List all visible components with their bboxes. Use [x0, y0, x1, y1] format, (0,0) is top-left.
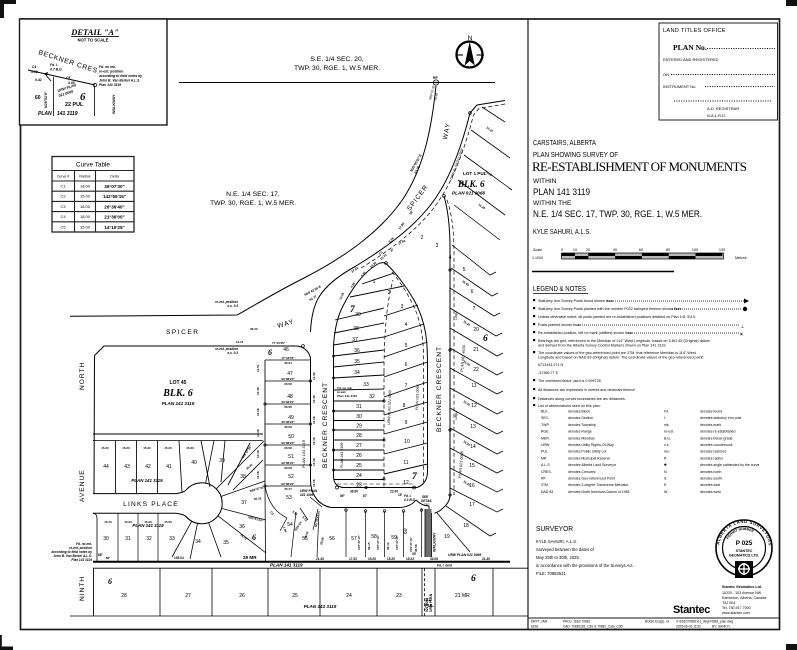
svg-text:33.08: 33.08 — [430, 557, 438, 561]
svg-text:5: 5 — [405, 343, 408, 349]
svg-text:54: 54 — [287, 522, 293, 528]
svg-text:29: 29 — [356, 424, 362, 430]
svg-text:-47366.77 E: -47366.77 E — [538, 371, 559, 375]
svg-text:26: 26 — [356, 453, 362, 459]
svg-text:14.38: 14.38 — [312, 395, 316, 403]
svg-text:PLAN 141 3119: PLAN 141 3119 — [304, 604, 337, 609]
svg-text:PLAN 241 1509: PLAN 241 1509 — [340, 443, 344, 468]
svg-text:21: 21 — [473, 347, 479, 353]
svg-text:105°37'10": 105°37'10" — [409, 536, 413, 552]
svg-text:denotes countersunk: denotes countersunk — [700, 443, 733, 447]
svg-text:8: 8 — [403, 403, 406, 409]
svg-text:BOOK Evq(s). xx: BOOK Evq(s). xx — [645, 620, 670, 624]
svg-text:14.38: 14.38 — [256, 471, 260, 479]
svg-text:4: 4 — [405, 322, 408, 328]
svg-text:30: 30 — [103, 536, 109, 542]
svg-text:23: 23 — [396, 593, 402, 599]
svg-text:URW: URW — [454, 411, 459, 420]
svg-text:A.L.S.: A.L.S. — [541, 463, 551, 467]
svg-text:35.77: 35.77 — [284, 487, 292, 491]
svg-text:29 MR: 29 MR — [243, 555, 257, 560]
svg-text:denotes Block: denotes Block — [568, 410, 590, 414]
svg-text:15.22: 15.22 — [406, 557, 414, 561]
svg-text:The coordinate values of the g: The coordinate values of the geo-referen… — [538, 351, 696, 355]
svg-text:C3: C3 — [60, 204, 66, 209]
svg-text:denotes Alberta Land Surveyor: denotes Alberta Land Surveyor — [568, 463, 617, 467]
svg-text:The combined factor used is 0.: The combined factor used is 0.999728. — [538, 379, 602, 383]
svg-text:56: 56 — [329, 536, 335, 542]
svg-text:according to field notes by: according to field notes by — [99, 74, 143, 78]
svg-text:res.: res. — [664, 450, 670, 454]
svg-text:denotes statutory iron post: denotes statutory iron post — [700, 416, 741, 420]
svg-text:Stantec: Stantec — [673, 604, 710, 616]
svg-text:CARSTAIRS, ALBERTA: CARSTAIRS, ALBERTA — [533, 138, 596, 147]
svg-text:WALKWAY: WALKWAY — [112, 94, 116, 114]
svg-text:SPICER: SPICER — [166, 329, 200, 336]
svg-text:20: 20 — [586, 248, 590, 252]
svg-text:6: 6 — [405, 362, 408, 368]
svg-text:33: 33 — [169, 536, 175, 542]
svg-text:MER.: MER. — [541, 436, 550, 440]
svg-text:1:1000: 1:1000 — [532, 256, 543, 260]
svg-text:All distances are expressed in: All distances are expressed in metres an… — [538, 388, 636, 392]
svg-text:John B. Van Berkel A.L.S.: John B. Van Berkel A.L.S. — [99, 79, 140, 83]
svg-text:120: 120 — [719, 248, 725, 252]
svg-text:12: 12 — [403, 480, 409, 486]
svg-text:BLK.: BLK. — [541, 410, 549, 414]
svg-text:21.40: 21.40 — [482, 557, 490, 561]
svg-text:denotes south: denotes south — [700, 477, 722, 481]
svg-text:DETAIL "A": DETAIL "A" — [70, 27, 119, 37]
svg-text:7: 7 — [405, 383, 408, 389]
svg-text:I.: I. — [664, 416, 666, 420]
svg-text:INSTRUMENT No.: INSTRUMENT No. — [663, 84, 696, 89]
svg-text:36.50: 36.50 — [350, 490, 358, 494]
svg-text:60: 60 — [639, 248, 643, 252]
svg-text:16: 16 — [469, 483, 475, 489]
svg-text:E.: E. — [664, 483, 667, 487]
svg-text:BECKNER CRESCENT: BECKNER CRESCENT — [436, 346, 443, 432]
svg-text:List of abbreviations used on: List of abbreviations used on this plan: — [538, 404, 601, 408]
svg-text:C5: C5 — [60, 224, 66, 229]
svg-text:May 29th to 30th, 2025: May 29th to 30th, 2025 — [536, 555, 580, 560]
svg-text:36: 36 — [354, 348, 360, 354]
svg-text:50: 50 — [288, 434, 294, 440]
svg-text:26°36'40": 26°36'40" — [104, 204, 124, 209]
svg-text:90°08'20": 90°08'20" — [281, 420, 295, 424]
svg-text:36.34: 36.34 — [284, 361, 292, 365]
svg-text:NOT TO SCALE: NOT TO SCALE — [77, 38, 108, 43]
svg-text:LINKS PLACE: LINKS PLACE — [123, 501, 179, 508]
svg-text:GEOMATICS LTD.: GEOMATICS LTD. — [729, 554, 759, 558]
svg-text:N.A.L.R.D.: N.A.L.R.D. — [707, 113, 726, 118]
svg-text:25: 25 — [356, 463, 362, 469]
svg-text:15.20: 15.20 — [368, 557, 376, 561]
svg-text:DRFT. JAM: DRFT. JAM — [531, 620, 548, 624]
svg-text:SEC.: SEC. — [541, 416, 549, 420]
svg-text:o.s. 0.3: o.s. 0.3 — [227, 304, 238, 308]
svg-text:67': 67' — [363, 494, 368, 498]
svg-text:15.20: 15.20 — [104, 520, 112, 524]
svg-text:12: 12 — [471, 403, 477, 409]
svg-text:36.58: 36.58 — [414, 544, 418, 552]
svg-text:9: 9 — [405, 420, 408, 426]
svg-text:21.40: 21.40 — [316, 557, 324, 561]
svg-text:Radius: Radius — [79, 175, 90, 179]
svg-text:MR: MR — [541, 456, 547, 460]
svg-text:T5J 0K4: T5J 0K4 — [722, 601, 735, 605]
svg-text:CAD. 70881181_C3S & 70881_Cata: CAD. 70881181_C3S & 70881_Cata_C3D — [563, 625, 624, 629]
svg-text:denotes restored: denotes restored — [700, 450, 726, 454]
svg-text:SURVEYOR: SURVEYOR — [536, 524, 573, 533]
svg-text:14.38: 14.38 — [312, 458, 316, 466]
svg-text:PLAN 141 3119: PLAN 141 3119 — [162, 401, 195, 406]
svg-text:43: 43 — [124, 464, 130, 470]
svg-text:105°37'10": 105°37'10" — [376, 534, 380, 550]
svg-text:LOT 1 PUL: LOT 1 PUL — [463, 171, 487, 176]
svg-text:37: 37 — [352, 337, 358, 343]
svg-text:36.58: 36.58 — [284, 446, 292, 450]
svg-text:Scale: Scale — [533, 248, 542, 252]
svg-text:2: 2 — [388, 290, 391, 296]
svg-text:36°07'30": 36°07'30" — [104, 184, 124, 189]
svg-text:32: 32 — [146, 536, 152, 542]
svg-text:"A": "A" — [424, 503, 430, 507]
svg-text:NORTH: NORTH — [79, 362, 86, 390]
svg-text:denotes west: denotes west — [700, 490, 721, 494]
svg-text:53: 53 — [286, 495, 292, 501]
svg-text:34: 34 — [354, 370, 360, 376]
svg-text:11: 11 — [403, 460, 408, 466]
svg-text:19: 19 — [444, 534, 450, 540]
svg-text:15.20: 15.20 — [143, 446, 151, 450]
svg-text:37: 37 — [241, 500, 247, 506]
svg-text:denotes mark: denotes mark — [700, 423, 721, 427]
svg-text:PLAN SHOWING SURVEY OF: PLAN SHOWING SURVEY OF — [533, 150, 619, 159]
svg-text:60: 60 — [35, 95, 41, 101]
svg-text:P 025: P 025 — [736, 540, 753, 547]
svg-text:KYLE SAHURI, A.L.S.: KYLE SAHURI, A.L.S. — [536, 539, 577, 544]
svg-text:14.38: 14.38 — [256, 429, 260, 437]
svg-text:10: 10 — [404, 439, 410, 445]
svg-text:15.30: 15.30 — [186, 446, 194, 450]
svg-text:TWP. 30, RGE. 1, W.5 MER.: TWP. 30, RGE. 1, W.5 MER. — [294, 65, 380, 72]
svg-text:denotes re-established: denotes re-established — [700, 430, 735, 434]
svg-text:c.s.: c.s. — [664, 443, 669, 447]
svg-text:Re-established position, left: Re-established position, left no mark (u… — [538, 331, 632, 335]
svg-text:A.D. REGISTRAR: A.D. REGISTRAR — [707, 106, 739, 111]
svg-text:36.15: 36.15 — [367, 542, 371, 550]
svg-text:4: 4 — [449, 255, 452, 261]
svg-text:Statutory Iron Survey Posts pl: Statutory Iron Survey Posts planted with… — [538, 307, 681, 311]
svg-text:22 PUL: 22 PUL — [65, 102, 84, 108]
svg-text:EEM.: EEM. — [531, 625, 539, 629]
svg-text:31: 31 — [356, 404, 362, 410]
svg-text:Fd. I.: Fd. I. — [50, 63, 58, 67]
svg-text:re-est. position: re-est. position — [99, 70, 123, 74]
svg-text:18.00: 18.00 — [80, 204, 91, 209]
svg-text:39: 39 — [219, 458, 225, 464]
svg-text:WALKWAY: WALKWAY — [433, 532, 437, 552]
svg-text:C4: C4 — [60, 214, 66, 219]
svg-text:Fd. no mk.: Fd. no mk. — [99, 65, 116, 69]
svg-text:Tel. 780.917.7000: Tel. 780.917.7000 — [722, 606, 751, 610]
svg-text:Fd.: Fd. — [664, 410, 669, 414]
svg-text:Delta: Delta — [110, 175, 118, 179]
svg-text:PLAN 141 3119: PLAN 141 3119 — [270, 563, 303, 568]
svg-text:NAD 83: NAD 83 — [541, 490, 553, 494]
svg-text:denotes below grade: denotes below grade — [700, 436, 733, 440]
svg-text:B.G.: B.G. — [664, 436, 671, 440]
svg-text:21°36'00": 21°36'00" — [104, 215, 124, 220]
svg-text:2025-06-02 11:52: 2025-06-02 11:52 — [676, 625, 701, 629]
svg-text:35: 35 — [354, 359, 360, 365]
svg-text:www.stantec.com: www.stantec.com — [722, 611, 750, 615]
svg-text:90°08'20": 90°08'20" — [281, 482, 295, 486]
svg-text:15.20: 15.20 — [164, 446, 172, 450]
svg-text:denotes Geo-referenced Point: denotes Geo-referenced Point — [568, 477, 615, 481]
svg-text:36.58: 36.58 — [284, 382, 292, 386]
svg-text:denotes east: denotes east — [700, 483, 720, 487]
svg-text:10220 - 103 Avenue NW: 10220 - 103 Avenue NW — [722, 591, 762, 595]
svg-text:39: 39 — [355, 312, 361, 318]
svg-text:15': 15' — [398, 493, 403, 497]
svg-text:141 3119: 141 3119 — [57, 111, 78, 117]
svg-text:14.38: 14.38 — [312, 416, 316, 424]
svg-text:80: 80 — [666, 248, 670, 252]
svg-text:Surveyed between the dates of: Surveyed between the dates of — [536, 547, 595, 552]
svg-text:6: 6 — [252, 533, 256, 542]
svg-text:100: 100 — [692, 248, 698, 252]
svg-text:denotes Township: denotes Township — [568, 423, 596, 427]
svg-text:15.00: 15.00 — [80, 194, 91, 199]
svg-text:PLAN No.: PLAN No. — [673, 43, 707, 52]
svg-text:CRES.: CRES. — [541, 470, 552, 474]
svg-text:6: 6 — [471, 574, 476, 584]
svg-text:AVENUE: AVENUE — [79, 469, 86, 502]
svg-text:51: 51 — [288, 454, 294, 460]
svg-text:10: 10 — [573, 248, 577, 252]
svg-text:PLAN 141 3119: PLAN 141 3119 — [533, 187, 590, 198]
svg-text:Posts planted shown thus: Posts planted shown thus — [538, 323, 580, 327]
svg-text:BLK. 6: BLK. 6 — [457, 179, 485, 189]
svg-text:18: 18 — [463, 523, 469, 529]
svg-text:15.20: 15.20 — [101, 446, 109, 450]
svg-text:Stantec Geomatics Ltd.: Stantec Geomatics Ltd. — [722, 585, 762, 589]
svg-text:♠: ♠ — [664, 462, 667, 468]
svg-text:denotes 3-degree Transverse Me: denotes 3-degree Transverse Mercator — [568, 483, 629, 487]
svg-text:13: 13 — [470, 424, 476, 430]
svg-text:77°42'05": 77°42'05" — [272, 341, 286, 345]
svg-text:7: 7 — [473, 306, 476, 312]
svg-text:24: 24 — [346, 593, 352, 599]
svg-text:90°08'20": 90°08'20" — [281, 377, 295, 381]
svg-text:N.E. 1/4 SEC. 17,: N.E. 1/4 SEC. 17, — [226, 191, 280, 198]
svg-text:denotes Section: denotes Section — [568, 416, 593, 420]
svg-text:LOT 45: LOT 45 — [170, 380, 187, 386]
svg-text:Longitude and based on NAD 83: Longitude and based on NAD 83 (Original)… — [538, 356, 704, 360]
svg-text:22: 22 — [426, 597, 431, 602]
svg-text:denotes Public Utility Lot: denotes Public Utility Lot — [568, 450, 606, 454]
svg-text:denotes Crescent: denotes Crescent — [568, 470, 595, 474]
svg-text:Curve #: Curve # — [57, 175, 70, 179]
svg-text:46: 46 — [283, 347, 289, 353]
svg-text:URW: URW — [454, 311, 459, 320]
svg-text:27: 27 — [185, 593, 191, 599]
svg-text:ENTERED AND REGISTERED: ENTERED AND REGISTERED — [663, 57, 719, 62]
svg-text:C5: C5 — [66, 76, 70, 80]
svg-text:60: 60 — [403, 528, 409, 534]
svg-text:5: 5 — [463, 267, 466, 273]
svg-text:TWP.: TWP. — [541, 423, 549, 427]
svg-text:22.40: 22.40 — [390, 490, 398, 494]
svg-text:denotes angle subtended by the: denotes angle subtended by the curve — [700, 463, 759, 467]
svg-text:36.58: 36.58 — [284, 466, 292, 470]
svg-text:40: 40 — [191, 460, 197, 466]
svg-text:52: 52 — [288, 474, 294, 480]
svg-text:14.38: 14.38 — [312, 479, 316, 487]
svg-text:Fd. I. bent: Fd. I. bent — [437, 564, 453, 568]
svg-text:RP: RP — [541, 477, 547, 481]
svg-text:Unless otherwise noted, all po: Unless otherwise noted, all posts plante… — [538, 315, 696, 319]
svg-text:PROJ. 1662-70881: PROJ. 1662-70881 — [563, 620, 591, 624]
svg-text:denotes Meridian: denotes Meridian — [568, 436, 595, 440]
svg-text:re-est.: re-est. — [664, 430, 674, 434]
svg-text:PLAN: PLAN — [38, 111, 52, 117]
svg-text:×: × — [740, 332, 743, 338]
svg-text:36.30: 36.30 — [250, 327, 258, 331]
svg-text:27: 27 — [356, 443, 362, 449]
svg-text:36: 36 — [239, 524, 245, 530]
svg-text:WITHIN: WITHIN — [533, 178, 557, 185]
svg-text:3TM: 3TM — [541, 483, 548, 487]
svg-text:Edmonton, Alberta, Canada: Edmonton, Alberta, Canada — [722, 596, 766, 600]
svg-text:and derived from the Alberta S: and derived from the Alberta Survey Cont… — [538, 344, 666, 348]
svg-text:6: 6 — [268, 348, 272, 357]
svg-text:36.58: 36.58 — [284, 405, 292, 409]
svg-text:89°: 89° — [340, 494, 346, 498]
svg-text:0.3 B.G.: 0.3 B.G. — [404, 498, 416, 502]
svg-text:Distances along curved boundar: Distances along curved boundaries are ar… — [538, 397, 626, 401]
svg-text:105°37'10": 105°37'10" — [357, 534, 361, 550]
svg-text:3: 3 — [436, 243, 439, 249]
svg-text:33: 33 — [363, 382, 369, 388]
svg-text:o.s. 0.3: o.s. 0.3 — [227, 351, 238, 355]
svg-text:denotes radius: denotes radius — [700, 456, 723, 460]
svg-text:PLAN 141 3119: PLAN 141 3119 — [301, 439, 306, 468]
svg-text:90°08'20": 90°08'20" — [281, 441, 295, 445]
svg-text:Plan 141 3119: Plan 141 3119 — [337, 394, 357, 398]
svg-text:35.43: 35.43 — [254, 496, 262, 501]
svg-text:denotes North American Datum o: denotes North American Datum of 1983 — [568, 490, 630, 494]
svg-text:31: 31 — [125, 536, 131, 542]
svg-text:N29°51'8": N29°51'8" — [44, 91, 48, 108]
svg-text:68°: 68° — [98, 553, 104, 557]
svg-text:URW PLAN 021 0069: URW PLAN 021 0069 — [448, 553, 481, 557]
svg-text:44: 44 — [103, 464, 109, 470]
svg-text:in accordance with the provisi: in accordance with the provisions of the… — [536, 563, 634, 568]
svg-text:35': 35' — [412, 552, 417, 556]
svg-text:6: 6 — [471, 289, 474, 295]
svg-text:N.: N. — [664, 470, 668, 474]
svg-text:6: 6 — [108, 577, 112, 586]
svg-text:14.51: 14.51 — [256, 364, 260, 372]
svg-text:denotes found: denotes found — [700, 410, 722, 414]
svg-text:RE-ESTABLISHMENT OF MONUMENTS: RE-ESTABLISHMENT OF MONUMENTS — [532, 159, 747, 174]
svg-text:denotes Municipal Reserve: denotes Municipal Reserve — [568, 456, 610, 460]
svg-text:15.20: 15.20 — [124, 520, 132, 524]
svg-text:W.: W. — [664, 490, 668, 494]
svg-text:14.51: 14.51 — [236, 340, 244, 344]
svg-text:WITHIN THE: WITHIN THE — [533, 200, 572, 207]
svg-text:18.00: 18.00 — [80, 184, 91, 189]
svg-text:BLK. 6: BLK. 6 — [162, 388, 192, 399]
svg-text:RP: RP — [433, 76, 438, 80]
svg-text:BY: SAHKYL: BY: SAHKYL — [712, 625, 731, 629]
svg-text:14: 14 — [470, 444, 476, 450]
svg-text:105°37'10": 105°37'10" — [395, 534, 399, 550]
svg-text:14.38: 14.38 — [256, 408, 260, 416]
svg-text:TWP. 30, RGE. 1, W.5 MER.: TWP. 30, RGE. 1, W.5 MER. — [210, 200, 296, 207]
svg-text:RGE.: RGE. — [541, 430, 550, 434]
svg-text:Bearings are grid, referenced: Bearings are grid, referenced to the Mer… — [538, 339, 710, 343]
svg-text:15.00: 15.00 — [80, 224, 91, 229]
svg-text:S.: S. — [664, 477, 667, 481]
svg-text:36.12: 36.12 — [386, 542, 390, 550]
svg-text:11: 11 — [471, 383, 476, 389]
svg-text:15.20: 15.20 — [122, 446, 130, 450]
svg-text:28: 28 — [356, 433, 362, 439]
svg-text:C4: C4 — [32, 65, 36, 69]
svg-text:14.38: 14.38 — [312, 372, 316, 380]
svg-text:36.58: 36.58 — [284, 425, 292, 429]
svg-text:denotes Utility Rights-Of-Way: denotes Utility Rights-Of-Way — [568, 443, 614, 447]
svg-text:PUL: PUL — [541, 450, 548, 454]
svg-text:23: 23 — [356, 483, 362, 489]
svg-text:42: 42 — [145, 464, 151, 470]
svg-text:S.E. 1/4 SEC. 20,: S.E. 1/4 SEC. 20, — [310, 56, 363, 63]
svg-text:34: 34 — [195, 539, 201, 545]
svg-text:KYLE SAHURI, A.L.S.: KYLE SAHURI, A.L.S. — [533, 227, 591, 236]
svg-text:C2: C2 — [60, 194, 66, 199]
svg-text:15.20: 15.20 — [144, 520, 152, 524]
svg-text:1: 1 — [373, 279, 376, 285]
svg-text:241 1509: 241 1509 — [299, 493, 314, 497]
svg-text:0: 0 — [561, 248, 563, 252]
svg-text:90°08'20": 90°08'20" — [281, 461, 295, 465]
svg-text:C1: C1 — [60, 184, 66, 189]
svg-text:Metres: Metres — [735, 256, 747, 260]
svg-text:FILE: 70883531: FILE: 70883531 — [536, 571, 566, 576]
svg-text:68°: 68° — [106, 556, 111, 560]
svg-text:15.26: 15.26 — [164, 520, 172, 524]
svg-text:40: 40 — [613, 248, 617, 252]
svg-text:26: 26 — [239, 593, 245, 599]
svg-text:17.20: 17.20 — [349, 557, 357, 561]
svg-text:14.38: 14.38 — [256, 387, 260, 395]
svg-text:N.E. 1/4 SEC. 17, TWP. 30, RGE: N.E. 1/4 SEC. 17, TWP. 30, RGE. 1, W.5 M… — [533, 209, 702, 220]
svg-text:41: 41 — [166, 464, 172, 470]
svg-text:denotes north: denotes north — [700, 470, 721, 474]
svg-text:20: 20 — [473, 327, 479, 333]
svg-text:6713443.271 N: 6713443.271 N — [538, 363, 564, 367]
svg-text:14.38: 14.38 — [256, 450, 260, 458]
svg-text:2: 2 — [421, 235, 424, 241]
svg-text:LAND TITLES OFFICE: LAND TITLES OFFICE — [663, 28, 726, 34]
svg-text:⊥: ⊥ — [740, 324, 744, 330]
svg-text:17: 17 — [469, 502, 475, 508]
svg-text:21 MR: 21 MR — [455, 593, 470, 599]
